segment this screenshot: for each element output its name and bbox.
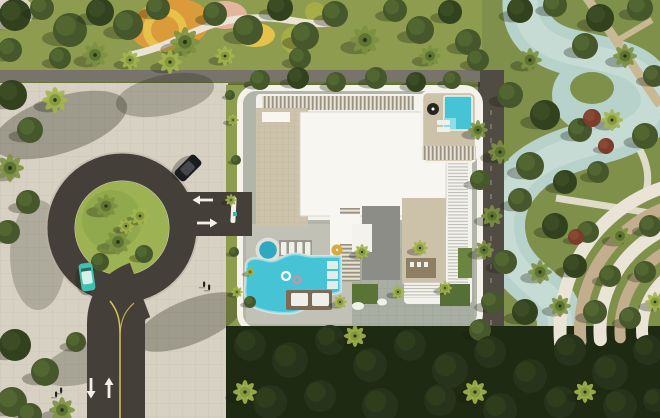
canopy-highlight <box>516 362 536 382</box>
canopy-highlight <box>19 119 35 135</box>
canopy-highlight <box>645 390 659 404</box>
arrow-shaft <box>197 222 210 225</box>
tree <box>424 384 456 416</box>
canopy-highlight <box>510 190 524 204</box>
canopy-highlight <box>324 3 340 19</box>
canopy-highlight <box>635 337 653 355</box>
canopy-highlight <box>499 84 515 100</box>
canopy-highlight <box>236 331 255 350</box>
deck-furniture <box>377 299 387 306</box>
in-pool-lounger <box>327 271 338 279</box>
canopy-highlight <box>0 40 14 54</box>
canopy-highlight <box>33 360 50 377</box>
rooftop-lounger <box>437 120 450 125</box>
palm-trunk-top <box>477 129 480 132</box>
canopy-highlight <box>1 331 20 350</box>
canopy-highlight <box>328 74 340 86</box>
canopy-highlight <box>641 217 654 230</box>
palm-trunk-top <box>428 54 431 57</box>
pedestrian-shadow <box>204 290 210 291</box>
tree <box>432 352 468 388</box>
canopy-highlight <box>56 16 76 36</box>
canopy-highlight <box>68 334 80 346</box>
canopy-highlight <box>636 263 649 276</box>
roof-box <box>262 112 290 122</box>
deck-furniture <box>352 302 364 310</box>
canopy-highlight <box>556 336 575 355</box>
tree <box>304 380 336 412</box>
arrow-shaft <box>108 385 111 398</box>
palm-trunk-top <box>116 240 120 244</box>
canopy-highlight <box>396 331 415 350</box>
canopy-highlight <box>51 49 64 62</box>
canopy-highlight <box>18 192 32 206</box>
canopy-highlight <box>440 2 454 16</box>
tree <box>513 359 547 393</box>
canopy-highlight <box>252 72 264 84</box>
canopy-highlight <box>232 156 238 162</box>
daybed <box>312 293 329 306</box>
canopy-highlight <box>599 139 609 149</box>
tree <box>353 348 387 382</box>
palm-trunk-top <box>249 271 250 272</box>
palm-trunk-top <box>232 119 234 121</box>
pedestrian-figure <box>208 285 210 291</box>
canopy-highlight <box>601 267 614 280</box>
arrow-shaft <box>90 378 93 391</box>
palm-trunk-top <box>498 150 501 153</box>
pergola-chair <box>424 262 428 267</box>
canopy-highlight <box>256 388 276 408</box>
palm-trunk-top <box>224 55 227 58</box>
yellow-umbrella-center <box>336 249 338 251</box>
canopy-highlight <box>136 246 147 257</box>
canopy-highlight <box>514 301 530 317</box>
terrace-louver-band <box>422 146 476 160</box>
canopy-highlight <box>585 302 599 316</box>
guard-booth <box>233 212 237 216</box>
canopy-highlight <box>367 69 380 82</box>
canopy-highlight <box>444 72 455 83</box>
canopy-highlight <box>435 355 457 377</box>
canopy-highlight <box>235 17 253 35</box>
palm-trunk-top <box>473 390 476 393</box>
spa-pool <box>259 241 277 259</box>
palm-trunk-top <box>490 214 493 217</box>
canopy-highlight <box>317 327 335 345</box>
tree <box>592 354 628 390</box>
canopy-highlight <box>588 6 605 23</box>
green-roof <box>352 284 378 304</box>
canopy-highlight <box>546 388 565 407</box>
canopy-highlight <box>426 386 445 405</box>
canopy-highlight <box>88 0 105 17</box>
palm-trunk-top <box>353 334 356 337</box>
canopy-highlight <box>0 82 17 100</box>
palm-trunk-top <box>339 301 341 303</box>
palm-trunk-top <box>129 59 132 62</box>
tree <box>394 329 426 361</box>
canopy-highlight <box>532 102 550 120</box>
tree <box>272 342 308 378</box>
palm-trunk-top <box>183 40 187 44</box>
palm-trunk-top <box>538 270 541 273</box>
palm-trunk-top <box>419 247 421 249</box>
palm-trunk-top <box>618 234 621 237</box>
palm-trunk-top <box>361 251 363 253</box>
daybed <box>291 293 308 306</box>
canopy-highlight <box>476 338 495 357</box>
canopy-highlight <box>645 67 658 80</box>
palm-trunk-top <box>230 199 232 201</box>
canopy-highlight <box>595 357 617 379</box>
palm-trunk-top <box>93 53 97 57</box>
pedestrian-figure <box>60 388 62 394</box>
canopy-highlight <box>226 91 232 97</box>
canopy-highlight <box>1 1 20 20</box>
tree <box>253 385 287 418</box>
canopy-highlight <box>569 230 579 240</box>
pool-lounger <box>305 242 311 255</box>
palm-trunk-top <box>654 301 657 304</box>
pergola <box>406 258 436 278</box>
palm-trunk-top <box>139 215 142 218</box>
canopy-highlight <box>495 252 509 266</box>
rooftop-lounger <box>437 127 450 132</box>
palm-trunk-top <box>483 249 486 252</box>
canopy-highlight <box>230 248 236 254</box>
umbrella-center <box>432 108 435 111</box>
canopy-highlight <box>408 18 425 35</box>
canopy-highlight <box>365 391 387 413</box>
aerial-render-canvas <box>0 0 660 418</box>
canopy-highlight <box>518 154 535 171</box>
in-pool-lounger <box>327 261 338 269</box>
tree <box>234 329 266 361</box>
louver-band-top <box>262 96 414 110</box>
canopy-highlight <box>115 12 133 30</box>
canopy-highlight <box>291 49 304 62</box>
canopy-highlight <box>634 125 650 141</box>
palm-trunk-top <box>528 58 531 61</box>
canopy-highlight <box>0 389 17 407</box>
car-roof <box>81 270 93 284</box>
palm-trunk-top <box>8 166 12 170</box>
pedestrian-shadow <box>199 287 205 288</box>
canopy-highlight <box>584 110 595 121</box>
palm-trunk-top <box>583 390 586 393</box>
arrow-shaft <box>200 199 213 202</box>
pedestrian-figure <box>55 392 57 398</box>
tree <box>0 329 31 361</box>
canopy-highlight <box>472 172 484 184</box>
palm-trunk-top <box>168 60 171 63</box>
palm-trunk-top <box>397 291 399 293</box>
pergola-chair <box>417 262 421 267</box>
tree <box>544 386 576 418</box>
canopy-highlight <box>621 309 634 322</box>
canopy-highlight <box>205 4 219 18</box>
river-island <box>570 72 614 104</box>
canopy-highlight <box>306 382 325 401</box>
canopy-highlight <box>385 0 399 14</box>
tree <box>554 334 586 366</box>
canopy-highlight <box>483 293 496 306</box>
palm-trunk-top <box>125 225 127 227</box>
canopy-highlight <box>574 35 590 51</box>
palm-trunk-top <box>610 118 613 121</box>
palm-trunk-top <box>363 38 367 42</box>
pergola-chair <box>410 262 414 267</box>
canopy-highlight <box>486 396 506 416</box>
canopy-highlight <box>293 24 310 41</box>
canopy-highlight <box>457 31 473 47</box>
canopy-highlight <box>565 256 579 270</box>
canopy-highlight <box>408 74 420 86</box>
pedestrian-figure <box>203 282 205 288</box>
canopy-highlight <box>471 321 484 334</box>
canopy-highlight <box>469 51 482 64</box>
pool-lounger <box>281 242 287 255</box>
palm-trunk-top <box>558 304 561 307</box>
palm-trunk-top <box>623 54 626 57</box>
canopy-highlight <box>92 254 103 265</box>
canopy-highlight <box>245 297 252 304</box>
palm-trunk-top <box>60 408 64 412</box>
palm-trunk-top <box>236 291 238 293</box>
canopy-highlight <box>606 392 626 412</box>
rooftop-terrace <box>422 92 476 162</box>
site-plan-render <box>0 0 660 418</box>
canopy-highlight <box>589 163 602 176</box>
canopy-highlight <box>356 351 376 371</box>
canopy-highlight <box>275 345 297 367</box>
canopy-highlight <box>555 172 569 186</box>
tree <box>474 336 506 368</box>
palm-trunk-top <box>444 287 446 289</box>
canopy-highlight <box>289 69 302 82</box>
palm-trunk-top <box>104 204 107 207</box>
pedestrian-shadow <box>51 397 57 398</box>
in-pool-lounger <box>327 281 338 289</box>
canopy-highlight <box>544 215 560 231</box>
palm-trunk-top <box>243 390 246 393</box>
palm-trunk-top <box>53 98 57 102</box>
